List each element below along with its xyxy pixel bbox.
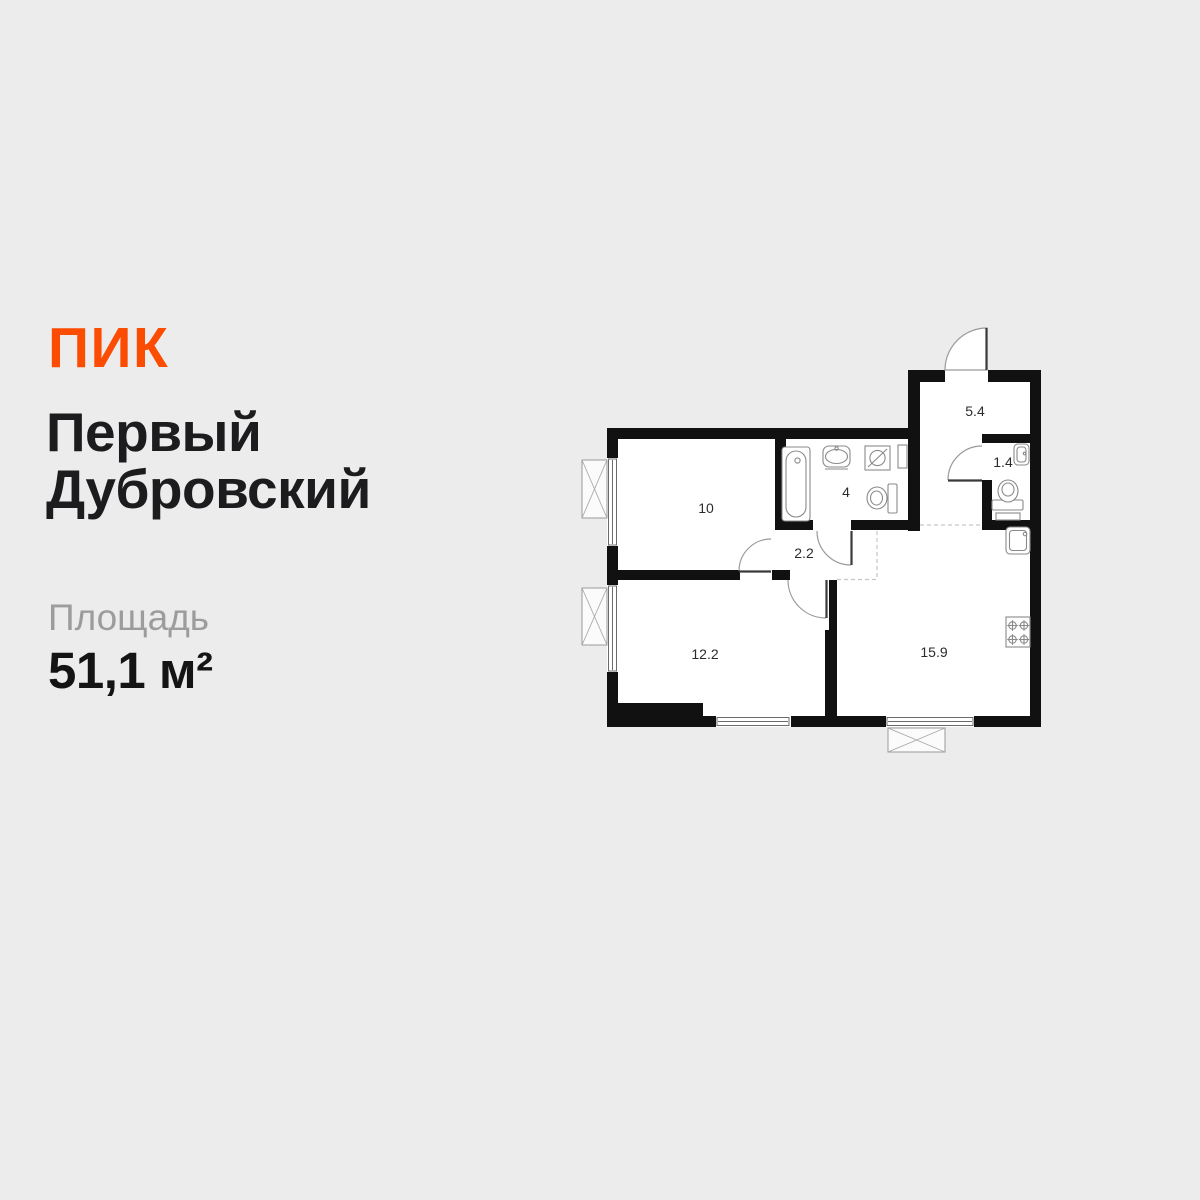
sink-icon (1014, 444, 1029, 465)
floorplan: 10 4 2.2 5.4 1.4 12.2 15.9 (0, 0, 1200, 1200)
window-icon (717, 718, 789, 726)
wall-segment (974, 716, 1041, 727)
sink-icon (823, 446, 850, 469)
room-label: 15.9 (920, 644, 947, 660)
promo-card: ПИК ПервыйДубровский Площадь 51,1 м² (0, 0, 1200, 1200)
wall-segment (851, 520, 920, 530)
entrance-door-swing-icon (945, 328, 987, 370)
room-label: 2.2 (794, 545, 814, 561)
window-icon (609, 459, 617, 545)
cabinet-icon (898, 445, 907, 468)
wall-segment (1030, 370, 1041, 727)
wall-segment (825, 630, 837, 716)
room-label: 10 (698, 500, 714, 516)
window-icon (609, 586, 617, 671)
wall-segment (791, 716, 886, 727)
wall-segment (908, 370, 945, 382)
wall-segment (607, 570, 740, 580)
washing-machine-icon (865, 446, 890, 470)
wall-segment (829, 580, 837, 630)
ac-basket-icon (888, 728, 945, 752)
ac-basket-icon (582, 460, 607, 518)
room-label: 5.4 (965, 403, 985, 419)
ac-basket-icon (582, 588, 607, 645)
wall-segment (982, 434, 1030, 443)
kitchen-sink-icon (1006, 527, 1030, 554)
room-label: 1.4 (993, 454, 1013, 470)
wall-segment (772, 570, 790, 580)
wall-segment (618, 703, 703, 716)
bathtub-icon (782, 447, 810, 521)
window-icon (887, 718, 973, 726)
room-label: 12.2 (691, 646, 718, 662)
floor-area (607, 370, 1041, 727)
wall-segment (607, 428, 908, 439)
wall-segment (607, 716, 716, 727)
room-label: 4 (842, 484, 850, 500)
wall-segment (908, 370, 920, 531)
